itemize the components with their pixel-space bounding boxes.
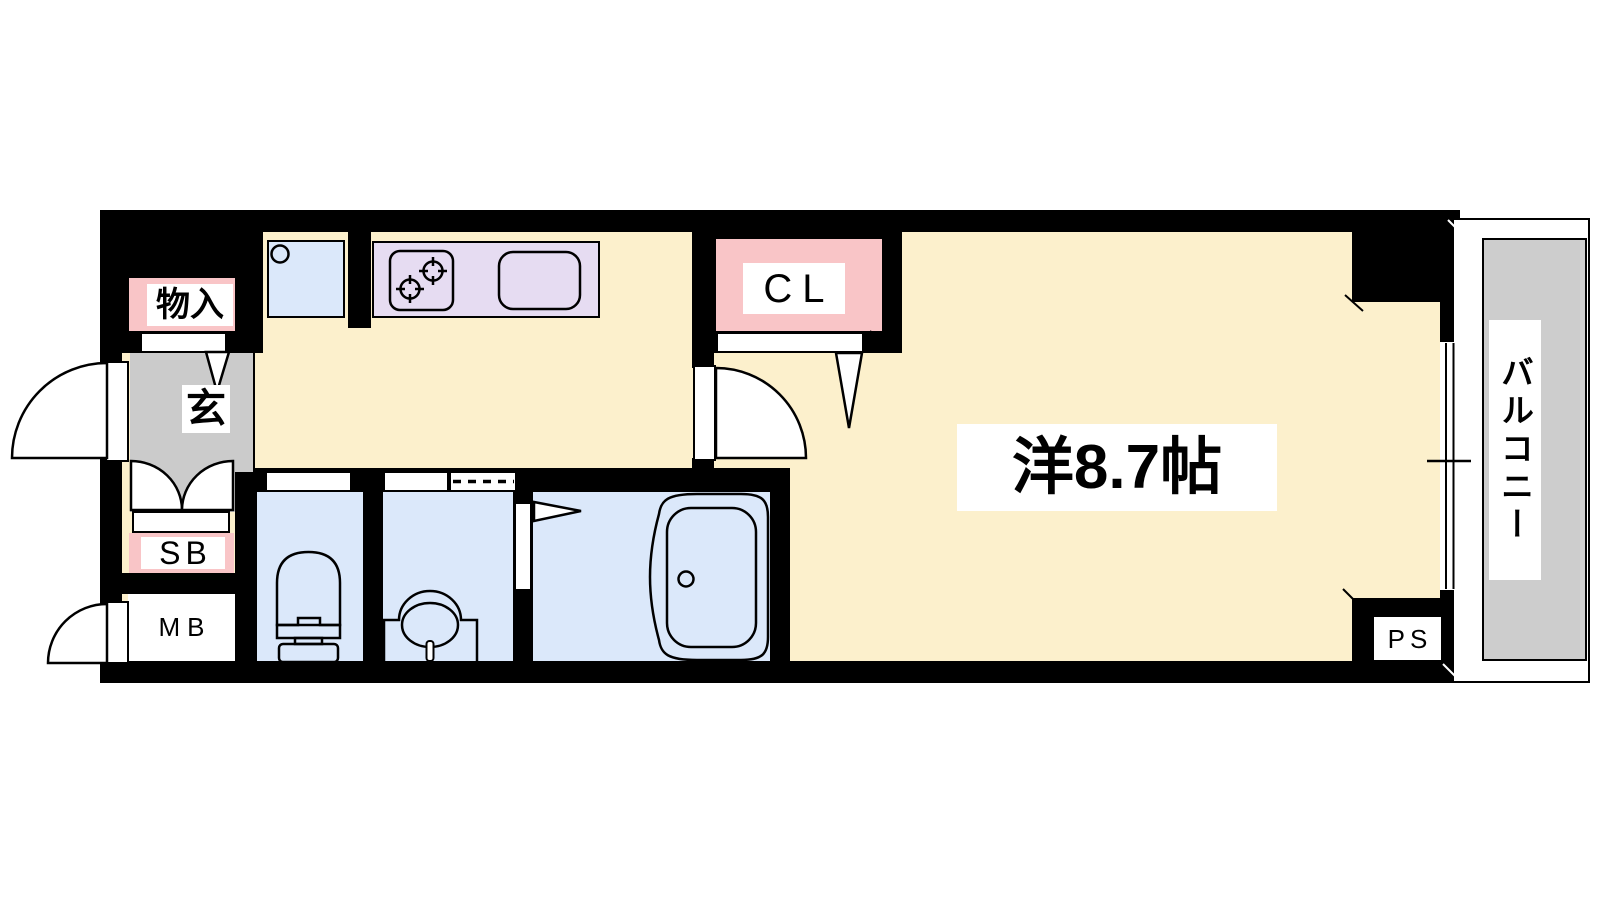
- washroom-sliding-door-pocket: [449, 471, 517, 492]
- meter-box-label: MB: [128, 604, 235, 650]
- washroom-floor: [383, 492, 513, 661]
- wall-room-door-upper: [692, 232, 714, 368]
- wall-top-right-notch: [1352, 232, 1440, 302]
- storage-label: 物入: [147, 284, 233, 326]
- bathroom-floor: [533, 492, 770, 661]
- wall-top: [100, 210, 1460, 232]
- meter-box-door-arc: [48, 604, 107, 663]
- floor-plan: 物入 玄 SB MB CL 洋8.7帖 PS バルコニー: [0, 0, 1600, 900]
- western-room-label: 洋8.7帖: [957, 424, 1277, 511]
- washroom-sliding-door-panel: [383, 471, 449, 492]
- toilet-floor: [257, 492, 363, 661]
- washing-machine-pan: [267, 240, 345, 318]
- storage-door: [140, 332, 227, 353]
- entrance-label: 玄: [182, 385, 230, 433]
- entrance-floor-lower: [130, 472, 235, 512]
- balcony-label: バルコニー: [1489, 320, 1541, 580]
- wall-kitchen-stub: [348, 217, 371, 328]
- shoe-box-label: SB: [141, 537, 225, 569]
- wall-toilet-washroom: [363, 492, 383, 661]
- entrance-door-leaf: [105, 361, 129, 462]
- pipe-space-label: PS: [1374, 617, 1441, 660]
- balcony-window: [1440, 342, 1460, 590]
- shoe-box-door-band: [132, 511, 230, 533]
- meter-box-door-leaf: [105, 601, 129, 664]
- wall-bottom: [100, 661, 1460, 683]
- wall-sb-mb-divider: [122, 573, 235, 594]
- kitchen-counter: [372, 241, 600, 318]
- wall-bath-room: [770, 492, 790, 661]
- bath-door-leaf: [514, 502, 532, 591]
- toilet-door: [265, 471, 352, 492]
- closet-label: CL: [743, 263, 845, 314]
- room-door-leaf: [693, 365, 716, 461]
- entrance-door-arc: [12, 363, 107, 458]
- wall-entrance-toilet: [235, 472, 257, 661]
- closet-door: [716, 332, 864, 353]
